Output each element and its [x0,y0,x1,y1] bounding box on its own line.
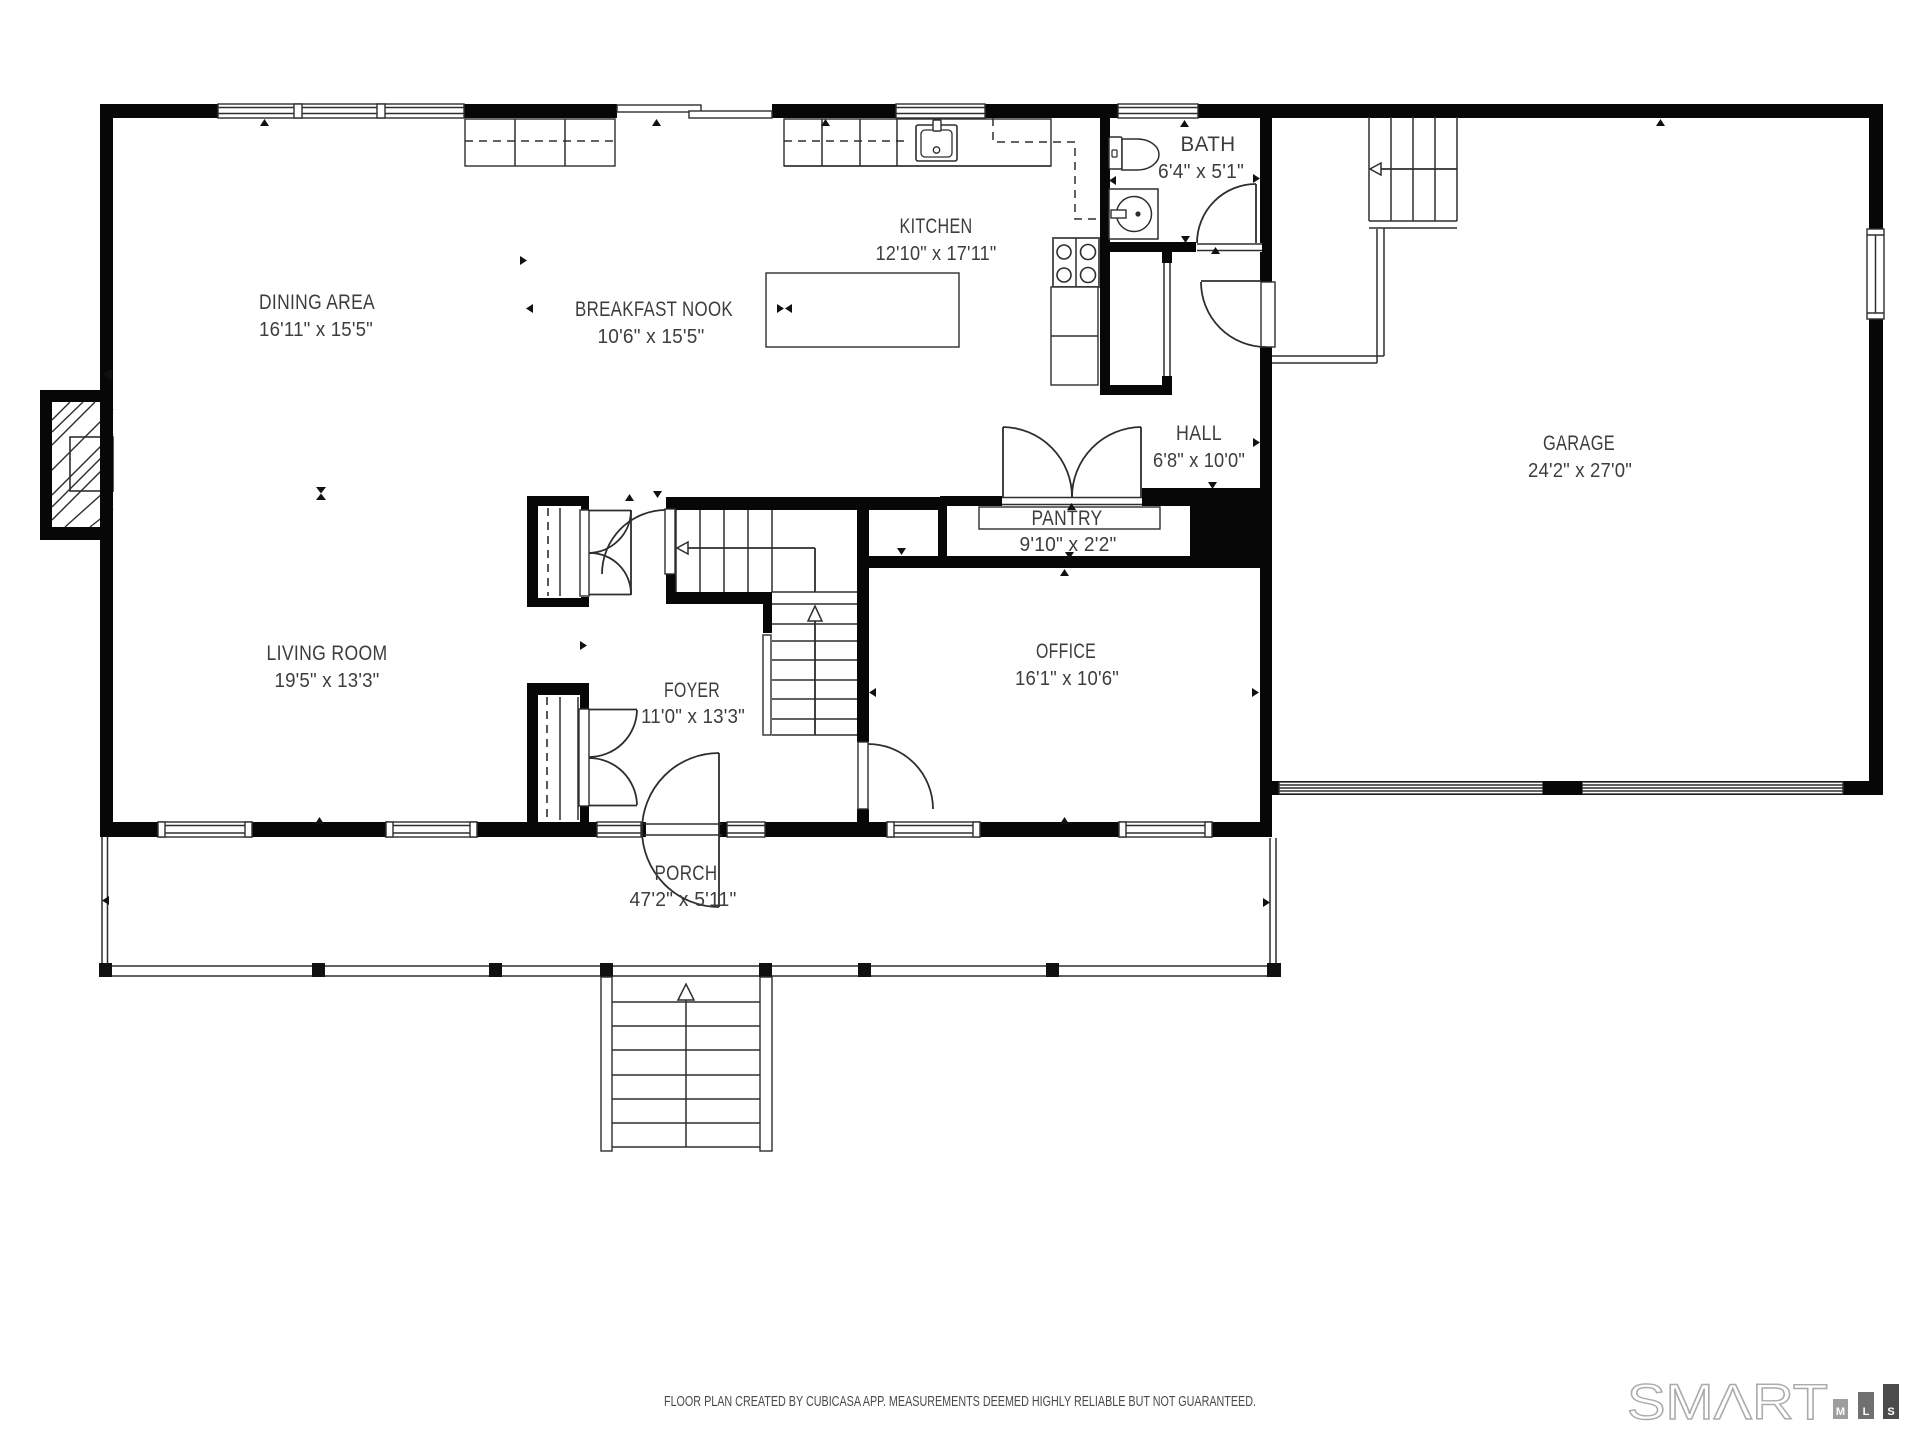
svg-text:S: S [1887,1406,1894,1418]
svg-text:11'0" x 13'3": 11'0" x 13'3" [641,706,745,728]
svg-text:10'6" x 15'5": 10'6" x 15'5" [598,326,705,348]
svg-text:M: M [1836,1406,1845,1418]
svg-text:BATH: BATH [1181,133,1236,156]
svg-text:PORCH: PORCH [655,862,718,885]
svg-text:PANTRY: PANTRY [1032,507,1103,530]
svg-text:19'5" x 13'3": 19'5" x 13'3" [275,670,380,692]
svg-text:FLOOR PLAN CREATED BY CUBICASA: FLOOR PLAN CREATED BY CUBICASA APP. MEAS… [664,1393,1256,1410]
svg-text:9'10" x 2'2": 9'10" x 2'2" [1020,534,1117,556]
svg-text:L: L [1863,1406,1870,1418]
svg-text:6'8" x 10'0": 6'8" x 10'0" [1153,450,1245,472]
svg-text:KITCHEN: KITCHEN [900,215,973,238]
svg-text:16'11" x 15'5": 16'11" x 15'5" [259,319,373,341]
svg-text:HALL: HALL [1176,422,1222,445]
svg-text:47'2" x 5'11": 47'2" x 5'11" [630,889,737,911]
svg-text:FOYER: FOYER [664,679,720,702]
svg-text:16'1" x 10'6": 16'1" x 10'6" [1015,668,1119,690]
svg-text:24'2" x 27'0": 24'2" x 27'0" [1528,460,1632,482]
svg-text:6'4" x 5'1": 6'4" x 5'1" [1158,161,1244,183]
svg-text:SMΛRT: SMΛRT [1627,1374,1828,1430]
svg-text:GARAGE: GARAGE [1543,432,1615,455]
svg-text:LIVING ROOM: LIVING ROOM [267,642,388,665]
svg-text:12'10" x 17'11": 12'10" x 17'11" [876,243,997,265]
svg-text:DINING AREA: DINING AREA [259,291,375,314]
svg-text:OFFICE: OFFICE [1036,640,1096,663]
svg-text:BREAKFAST NOOK: BREAKFAST NOOK [575,298,733,321]
